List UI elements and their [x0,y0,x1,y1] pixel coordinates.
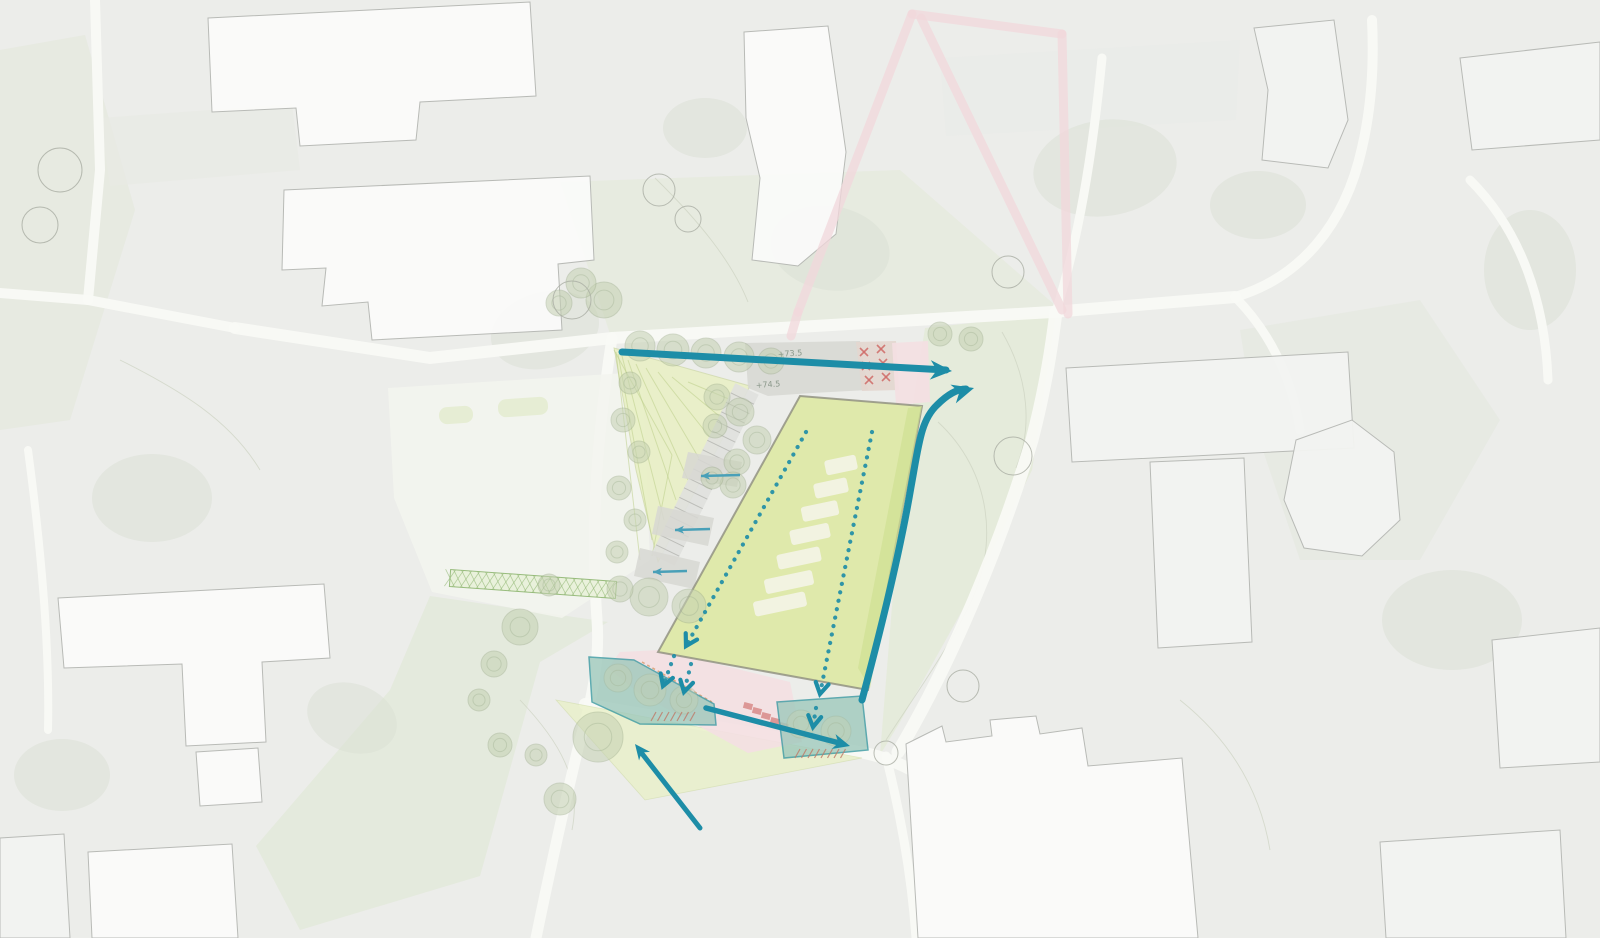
tree [630,578,668,616]
tree [573,712,623,762]
tree [544,783,576,815]
tree [726,398,754,426]
building-footprint [1460,42,1600,150]
tree [502,609,538,645]
vegetation-mass [1210,171,1306,239]
tree [619,372,641,394]
tree [481,651,507,677]
building-footprint [1254,20,1348,168]
tree [468,689,490,711]
building-footprint [1150,458,1252,648]
vegetation-mass [14,739,110,811]
tree [928,322,952,346]
vegetation-mass [92,454,212,542]
building-footprint [0,834,70,938]
building-footprint [88,844,238,938]
tree [657,334,689,366]
planting-island [497,396,548,417]
tree [525,744,547,766]
tree [701,467,723,489]
tree [607,476,631,500]
tree [538,574,560,596]
elevation-label: +74.5 [756,379,781,390]
site-plan-stage: +73.5+74.5 [0,0,1600,938]
tree [488,733,512,757]
site-plan-svg: +73.5+74.5 [0,0,1600,938]
tree [959,327,983,351]
pink-terrace [892,341,930,405]
tree [624,509,646,531]
building-footprint [196,748,262,806]
planting-island [438,405,473,424]
tree [703,414,727,438]
tree [606,541,628,563]
tree [607,576,633,602]
tree [604,664,632,692]
building-footprint [1380,830,1566,938]
tree [743,426,771,454]
tree [611,408,635,432]
pink-path [1062,34,1068,314]
tree [724,449,750,475]
vegetation-mass [663,98,747,158]
tree [628,441,650,463]
tree [546,290,572,316]
building-footprint [1492,628,1600,768]
tree [704,384,730,410]
